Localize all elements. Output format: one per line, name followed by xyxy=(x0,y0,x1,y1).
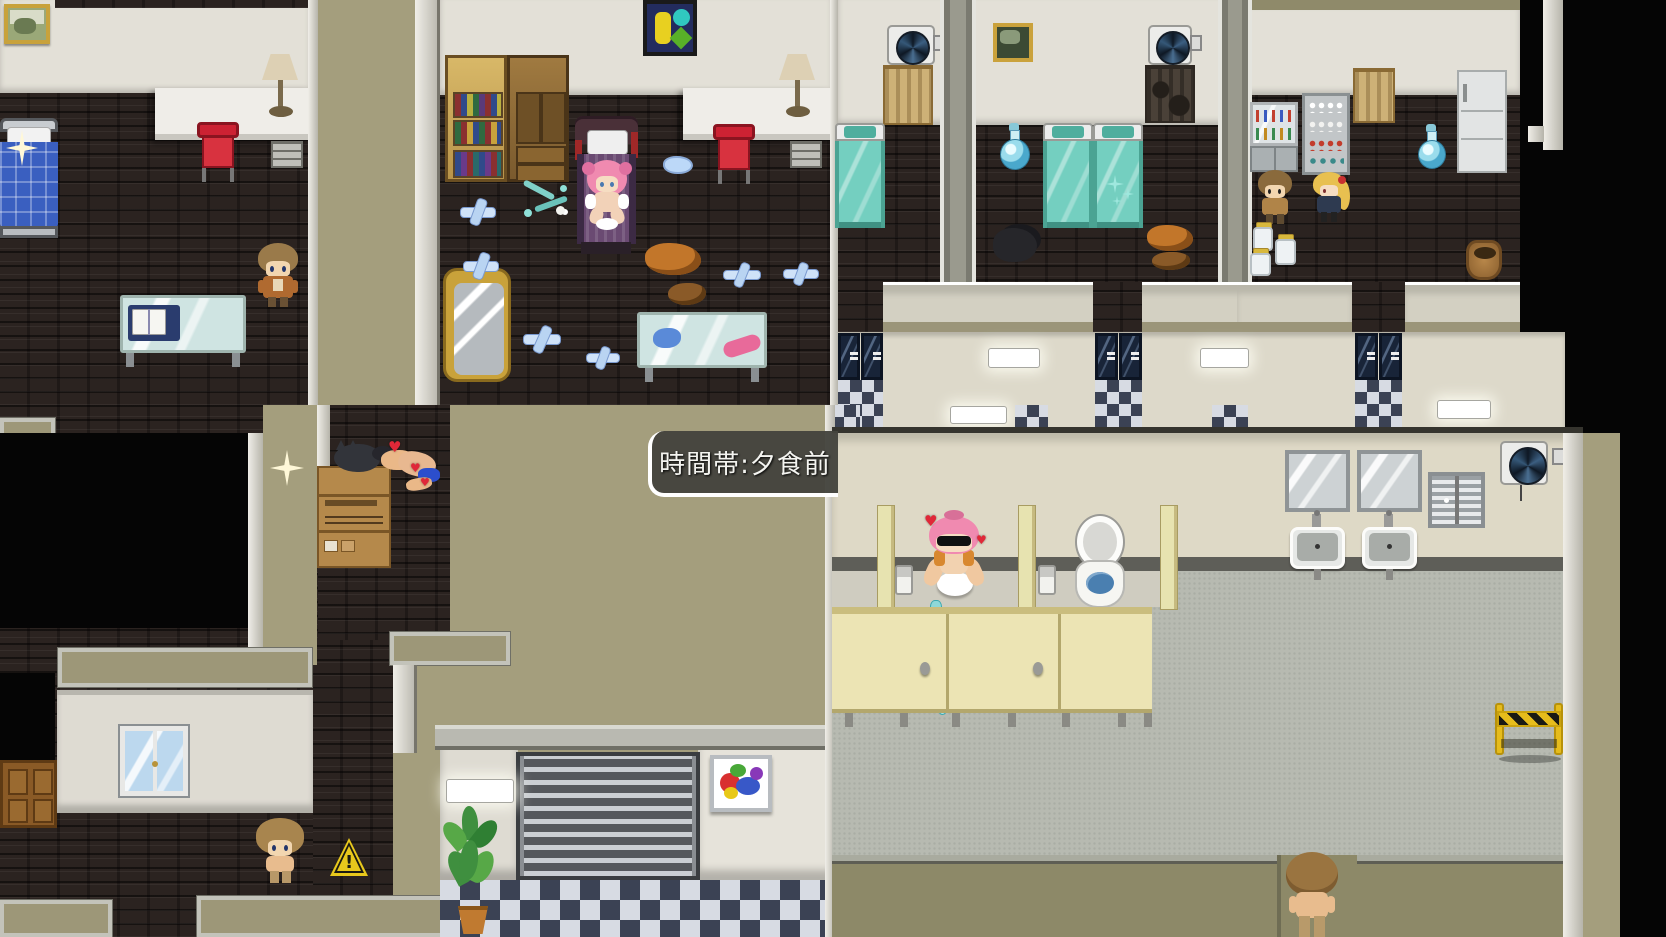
orange-clothes[interactable] xyxy=(1147,225,1193,251)
wooden-door[interactable] xyxy=(0,760,57,828)
chair-legs xyxy=(718,170,750,184)
wardrobe-door-right xyxy=(541,92,566,144)
potion-bottle-kitchen[interactable] xyxy=(1418,124,1444,168)
stall-doors[interactable] xyxy=(832,607,1152,713)
lamp-a xyxy=(262,54,298,120)
bed-footrail xyxy=(0,226,58,238)
blue-scrunchie[interactable] xyxy=(663,156,693,174)
character-boy-room-a[interactable] xyxy=(258,243,298,307)
teal-bed-1 xyxy=(835,123,885,228)
pink-girl-lace-right xyxy=(618,194,629,209)
bathroom-mirror xyxy=(1357,450,1422,512)
tan-curtain-room1 xyxy=(883,65,933,125)
dresser-b xyxy=(790,141,822,168)
stall-partition xyxy=(877,505,895,610)
fan-cord xyxy=(1520,485,1522,501)
boy-arm-left xyxy=(258,280,265,293)
character-girl-pink-bed[interactable] xyxy=(584,160,630,232)
bathroom-mirror xyxy=(1285,450,1350,512)
stall-feet xyxy=(1144,713,1152,727)
ornate-mirror[interactable] xyxy=(443,268,511,382)
open-toilet[interactable] xyxy=(1073,516,1127,610)
boy-shirt xyxy=(273,279,283,291)
wall-band-horizontal xyxy=(58,648,312,687)
refrigerator[interactable] xyxy=(1457,70,1507,173)
blue-bed xyxy=(0,118,58,240)
case2-leg-right xyxy=(751,368,759,382)
pink-girl-eye2 xyxy=(610,182,614,187)
blinds-window xyxy=(1428,472,1485,528)
map-void-right xyxy=(1620,433,1666,937)
picture-hill xyxy=(14,18,36,34)
boy-leg-right xyxy=(280,297,288,307)
bathroom-right-wall-edge xyxy=(1563,433,1583,937)
pink-girl-bun-left xyxy=(582,162,595,175)
case2-leg-left xyxy=(645,368,653,382)
door-sign-marks xyxy=(1131,352,1139,360)
orange-clothes[interactable] xyxy=(645,243,701,275)
bathroom-sink[interactable] xyxy=(1362,514,1417,580)
fluorescent-light xyxy=(1200,348,1249,368)
stall-feet xyxy=(952,713,960,727)
mirror-glass xyxy=(454,283,504,375)
door-mat-2 xyxy=(1095,380,1142,427)
stall-feet xyxy=(1118,713,1126,727)
bathroom-vent-fan xyxy=(1500,441,1548,485)
poster-circle xyxy=(673,9,690,26)
toilet-paper-roll xyxy=(895,565,913,595)
landscape-picture xyxy=(4,4,50,44)
toilet-girl-ponytail xyxy=(944,510,964,520)
hairclip-blue[interactable] xyxy=(586,346,618,368)
khaki-ledge xyxy=(263,405,317,665)
red-chair-a xyxy=(197,122,239,184)
stall-feet xyxy=(1062,713,1070,727)
heart-icon: ♥ xyxy=(410,462,421,474)
display-case-items[interactable] xyxy=(637,312,767,382)
wardrobe-door-left xyxy=(516,92,541,144)
abstract-painting xyxy=(710,755,772,812)
stall-partition xyxy=(1018,505,1036,610)
white-bead xyxy=(556,206,565,215)
chair-seat xyxy=(202,136,234,168)
panel-b-left-wall-edge xyxy=(415,0,440,405)
case-leg-left xyxy=(126,353,134,367)
glass-bottle-cabinet xyxy=(1250,102,1298,172)
bathroom-sink[interactable] xyxy=(1290,514,1345,580)
fluorescent-light xyxy=(1437,400,1491,419)
lamp-stem xyxy=(278,80,283,108)
building-edge-notch xyxy=(1528,126,1544,142)
door-sign-marks xyxy=(1367,352,1375,360)
stall-feet xyxy=(845,713,853,727)
pink-girl-cloth xyxy=(596,218,618,230)
hairclip-blue[interactable] xyxy=(463,252,497,278)
book-spine-line xyxy=(148,309,150,335)
fluorescent-light xyxy=(950,406,1007,424)
stall-feet xyxy=(900,713,908,727)
dish-shelf xyxy=(1302,93,1350,175)
game-screenshot-collage: ♥ ♥ ♥ ! xyxy=(0,0,1666,937)
door-sign-marks xyxy=(850,352,858,360)
chair-legs xyxy=(202,168,234,182)
bathroom-bottom-wall-right xyxy=(1357,855,1583,937)
case-leg-right xyxy=(232,353,240,367)
bottom-corridor-band-left xyxy=(0,900,112,937)
pink-girl-bun-right xyxy=(619,162,632,175)
hairclip-blue[interactable] xyxy=(523,325,559,352)
panel-a-right-wall-edge xyxy=(308,0,318,405)
wall-band-vertical-small xyxy=(393,665,417,753)
bed-blanket xyxy=(0,142,58,228)
doorway-gap-2 xyxy=(1093,282,1142,332)
door-sign-marks xyxy=(873,352,881,360)
dorm-picture xyxy=(993,23,1033,62)
map-void xyxy=(1565,332,1666,433)
books-shelf-3 xyxy=(453,150,503,178)
warning-exclamation: ! xyxy=(345,852,353,873)
heart-icon: ♥ xyxy=(924,514,937,529)
dresser-a xyxy=(271,141,303,168)
door-knob[interactable] xyxy=(920,662,930,675)
lamp-stem xyxy=(795,80,800,108)
heart-icon: ♥ xyxy=(976,534,987,546)
warning-sign[interactable]: ! xyxy=(330,838,368,882)
wardrobe xyxy=(507,55,569,182)
kitchen-roof-strip xyxy=(1237,0,1520,10)
teal-necklace[interactable] xyxy=(520,183,572,225)
pink-girl-eye xyxy=(600,182,604,187)
dorm-divider-wall-1 xyxy=(940,0,976,290)
roof-gap-top xyxy=(318,0,415,405)
hall-tile-column xyxy=(1212,405,1248,427)
house-window[interactable] xyxy=(120,726,188,796)
bed-foot xyxy=(581,242,631,254)
kitchen-bottom-wall-left xyxy=(1237,282,1352,332)
wicker-basket[interactable] xyxy=(1466,240,1502,280)
doorway-gap-3 xyxy=(1352,282,1405,332)
door-mat-3 xyxy=(1355,380,1402,427)
shutter-room-top-border xyxy=(435,725,835,750)
hall-tile-column xyxy=(832,405,860,427)
hairclip-blue[interactable] xyxy=(723,262,759,286)
heart-icon: ♥ xyxy=(420,477,430,488)
boy-eye-right xyxy=(282,266,286,272)
roof-void-large xyxy=(0,433,248,628)
hall-tile-column xyxy=(1015,405,1048,427)
bathroom-bottom-wall-left xyxy=(832,855,1277,937)
toilet-paper-roll xyxy=(1038,565,1056,595)
fluorescent-light xyxy=(988,348,1040,368)
boy-eye-left xyxy=(270,266,274,272)
dorm-bottom-wall xyxy=(838,282,1250,332)
character-boy-kitchen[interactable] xyxy=(1258,170,1292,224)
sunglasses xyxy=(937,536,971,546)
doorway-gap-1 xyxy=(838,282,883,332)
wall-band-corner xyxy=(390,632,510,665)
character-boy-maze[interactable] xyxy=(256,818,304,884)
tan-curtain-kitchen xyxy=(1353,68,1395,123)
poster xyxy=(643,0,697,56)
character-girl-blonde-kitchen[interactable] xyxy=(1311,172,1349,224)
void-behind-door xyxy=(0,673,55,762)
black-clothes[interactable] xyxy=(993,228,1037,262)
wardrobe-drawer-2 xyxy=(516,164,566,182)
cardboard-boxes[interactable] xyxy=(317,466,391,568)
case2-blue-item xyxy=(653,328,681,348)
hairclip-blue[interactable] xyxy=(783,262,817,284)
lamp-shade xyxy=(262,54,298,80)
metal-shutter xyxy=(516,752,700,880)
wall-fan-unit xyxy=(1148,25,1192,65)
heart-icon: ♥ xyxy=(388,440,401,455)
potted-plant xyxy=(444,806,500,937)
bottom-corridor-band-right xyxy=(197,896,450,937)
void-right-edge xyxy=(248,433,263,665)
fluorescent-light xyxy=(446,779,514,803)
building-outer-edge xyxy=(1543,0,1563,150)
boy-arm-right xyxy=(291,280,298,293)
stall-feet xyxy=(1008,713,1016,727)
wall-fan-unit xyxy=(887,25,935,65)
books-shelf-2 xyxy=(453,120,503,146)
teal-bed-2 xyxy=(1043,123,1093,228)
books-shelf-1 xyxy=(453,92,503,118)
room-a-top-brick-sliver xyxy=(55,0,310,8)
boy-leg-left xyxy=(268,297,276,307)
time-banner: 時間帯:夕食前 xyxy=(648,431,838,497)
hairclip-blue[interactable] xyxy=(460,198,494,224)
bathroom-right-roof xyxy=(1583,433,1620,937)
time-banner-text: 時間帯:夕食前 xyxy=(659,444,831,481)
lamp-base xyxy=(786,106,810,117)
character-boy-bathroom-exit[interactable] xyxy=(1286,852,1338,937)
lamp-b xyxy=(779,54,815,120)
bookshelf xyxy=(445,55,507,182)
map-void xyxy=(1520,0,1666,332)
construction-barrier[interactable] xyxy=(1495,703,1563,765)
stall-partition xyxy=(1160,505,1178,610)
glass-jars[interactable] xyxy=(1248,222,1300,276)
door-sign-marks xyxy=(1391,352,1399,360)
poster-diamond xyxy=(670,27,693,50)
bed-pillow-white xyxy=(587,130,628,155)
display-case-book[interactable] xyxy=(120,295,246,367)
torn-curtain-room2 xyxy=(1145,65,1195,123)
wardrobe-drawer-1 xyxy=(516,146,566,164)
chair-seat xyxy=(718,138,750,170)
plant-pot xyxy=(458,906,488,934)
potion-bottle-dorm[interactable] xyxy=(1000,123,1028,169)
door-sign-marks xyxy=(1107,352,1115,360)
lamp-shade xyxy=(779,54,815,80)
lamp-base xyxy=(269,106,293,117)
teal-bed-3 xyxy=(1093,123,1143,228)
red-chair-b xyxy=(713,124,755,186)
poster-cylinder xyxy=(655,12,671,44)
fan-cord xyxy=(1190,35,1202,51)
door-knob[interactable] xyxy=(1033,662,1043,675)
